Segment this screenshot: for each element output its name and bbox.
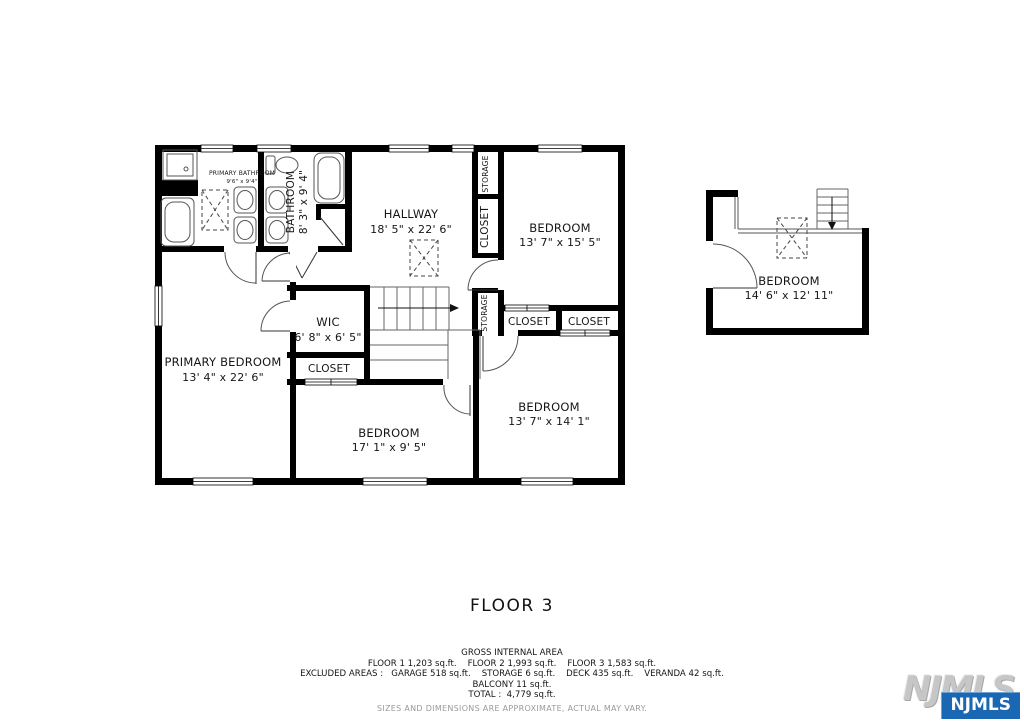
label-closet-row-2: CLOSET — [568, 316, 610, 328]
window — [521, 478, 573, 485]
label-closet-row-1: CLOSET — [508, 316, 550, 328]
window — [389, 145, 429, 152]
staircase-detached — [817, 189, 848, 230]
window — [538, 145, 582, 152]
sink — [234, 187, 256, 213]
door-primary-bathroom — [225, 252, 256, 284]
area-summary: GROSS INTERNAL AREA FLOOR 1 1,203 sq.ft.… — [0, 648, 1024, 715]
door-bedroom-bottom-right — [483, 336, 518, 371]
sliding-door — [505, 305, 549, 311]
room-label-primary-bedroom: PRIMARY BEDROOM — [164, 355, 281, 369]
door-bedroom-top-right — [468, 260, 498, 290]
room-dims-bedroom-bottom-middle: 17' 1" x 9' 5" — [352, 441, 426, 454]
floors-areas: FLOOR 1 1,203 sq.ft. FLOOR 2 1,993 sq.ft… — [0, 659, 1024, 670]
room-dims-wic: 6' 8" x 6' 5" — [294, 331, 361, 344]
gross-area-title: GROSS INTERNAL AREA — [0, 648, 1024, 659]
room-label-bedroom-bottom-right: BEDROOM — [518, 400, 579, 414]
door-detached-bedroom — [706, 241, 757, 288]
floor-title: FLOOR 3 — [0, 596, 1024, 616]
total-area: TOTAL : 4,779 sq.ft. — [0, 690, 1024, 701]
sliding-door — [560, 330, 610, 336]
window — [363, 478, 427, 485]
sliding-doors — [305, 305, 610, 385]
excluded-areas: EXCLUDED AREAS : GARAGE 518 sq.ft. STORA… — [0, 669, 1024, 680]
skylight — [777, 218, 807, 258]
sink — [234, 217, 256, 243]
stair-direction-arrow — [378, 304, 459, 312]
detached-room-walls — [706, 190, 869, 335]
bathtub-hall — [314, 153, 344, 203]
staircase-main — [370, 287, 480, 379]
room-dims-hallway: 18' 5" x 22' 6" — [370, 223, 452, 236]
njmls-logo-badge: NJMLS — [941, 692, 1020, 719]
label-closet-top: CLOSET — [479, 206, 491, 248]
label-storage-mid: STORAGE — [480, 294, 489, 331]
room-label-bedroom-detached: BEDROOM — [758, 274, 819, 288]
window — [201, 145, 233, 152]
room-dims-bedroom-bottom-right: 13' 7" x 14' 1" — [508, 415, 590, 428]
door-bathroom-closet — [320, 217, 343, 245]
bathtub-primary — [161, 198, 194, 246]
sliding-door — [305, 379, 357, 385]
room-dims-bedroom-top-right: 13' 7" x 15' 5" — [519, 236, 601, 249]
detached-room-railing — [735, 197, 862, 233]
disclaimer: SIZES AND DIMENSIONS ARE APPROXIMATE, AC… — [0, 704, 1024, 715]
label-closet-wic: CLOSET — [308, 363, 350, 375]
skylight — [410, 240, 438, 276]
fixtures — [161, 150, 344, 246]
room-label-bedroom-bottom-middle: BEDROOM — [358, 426, 419, 440]
balcony-area: BALCONY 11 sq.ft. — [0, 680, 1024, 691]
room-dims-primary-bathroom: 9'6" x 9'4" — [226, 179, 257, 185]
room-label-primary-bathroom: PRIMARY BATHROOM — [209, 170, 275, 177]
door-bedroom-bottom-middle — [444, 385, 470, 416]
room-dims-bathroom: 8' 3" x 9' 4" — [298, 170, 310, 234]
room-label-hallway: HALLWAY — [384, 207, 439, 221]
room-dims-bedroom-detached: 14' 6" x 12' 11" — [745, 289, 834, 302]
door-primary-bedroom — [262, 253, 290, 281]
room-label-bathroom: BATHROOM — [285, 171, 297, 233]
skylight — [202, 190, 228, 230]
njmls-watermark: NJMLS NJMLS — [890, 669, 1020, 721]
label-storage-top: STORAGE — [481, 155, 490, 192]
room-label-bedroom-top-right: BEDROOM — [529, 221, 590, 235]
room-label-wic: WIC — [316, 315, 339, 329]
shower — [163, 150, 197, 180]
room-dims-primary-bedroom: 13' 4" x 22' 6" — [182, 371, 264, 384]
door-wic — [261, 301, 290, 331]
window — [155, 286, 162, 326]
window — [193, 478, 253, 485]
window — [452, 145, 474, 152]
window — [257, 145, 291, 152]
